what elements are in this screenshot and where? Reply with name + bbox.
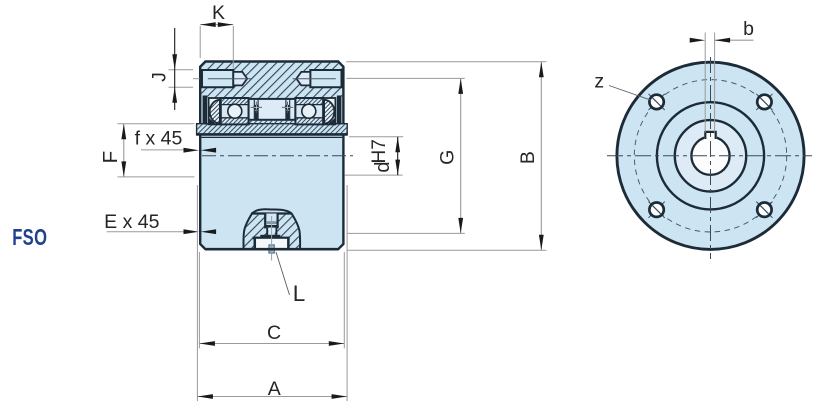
svg-text:FSO: FSO: [12, 226, 47, 251]
svg-text:L: L: [293, 281, 306, 306]
svg-text:H7: H7: [369, 139, 390, 163]
svg-text:f x 45: f x 45: [135, 128, 183, 150]
svg-text:A: A: [268, 378, 281, 400]
svg-text:B: B: [517, 151, 539, 164]
svg-text:J: J: [148, 72, 170, 82]
svg-text:d: d: [372, 161, 394, 172]
svg-text:C: C: [267, 322, 281, 344]
svg-text:b: b: [743, 18, 754, 40]
svg-text:G: G: [436, 150, 458, 165]
svg-text:z: z: [594, 70, 604, 92]
svg-text:E x 45: E x 45: [104, 211, 159, 233]
svg-text:F: F: [99, 151, 122, 164]
svg-text:K: K: [212, 2, 225, 24]
